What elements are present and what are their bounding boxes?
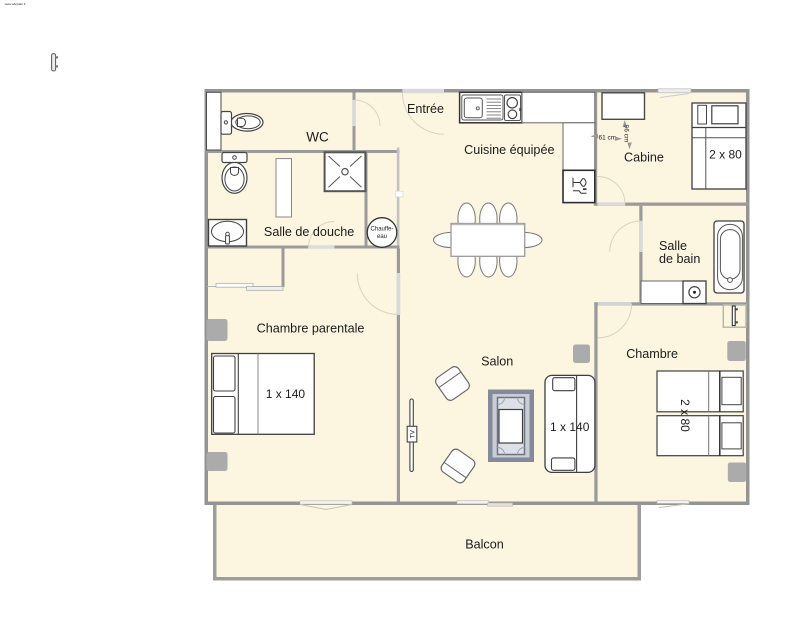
svg-text:Balcon: Balcon [465, 538, 504, 552]
svg-text:www.abcplan.fr: www.abcplan.fr [5, 2, 26, 6]
svg-text:WC: WC [306, 129, 329, 144]
svg-text:2 x 80: 2 x 80 [678, 399, 692, 432]
svg-text:2 x 80: 2 x 80 [709, 148, 742, 162]
svg-text:de bain: de bain [659, 252, 700, 266]
svg-text:Chambre parentale: Chambre parentale [257, 321, 365, 335]
svg-text:Salon: Salon [481, 355, 513, 369]
svg-text:Chambre: Chambre [626, 347, 678, 361]
svg-text:Cuisine équipée: Cuisine équipée [464, 143, 554, 157]
svg-text:Salle de douche: Salle de douche [264, 225, 354, 239]
svg-text:Chauffe-: Chauffe- [371, 227, 394, 233]
svg-text:TV: TV [409, 429, 416, 438]
svg-text:96 cm: 96 cm [623, 125, 630, 143]
svg-text:Entrée: Entrée [407, 102, 444, 116]
svg-text:Salle: Salle [659, 239, 687, 253]
svg-text:61 cm: 61 cm [599, 135, 617, 142]
svg-text:eau: eau [377, 234, 387, 240]
svg-text:Cabine: Cabine [624, 151, 664, 165]
svg-text:1 x 140: 1 x 140 [266, 387, 306, 401]
svg-text:1 x 140: 1 x 140 [550, 420, 590, 434]
